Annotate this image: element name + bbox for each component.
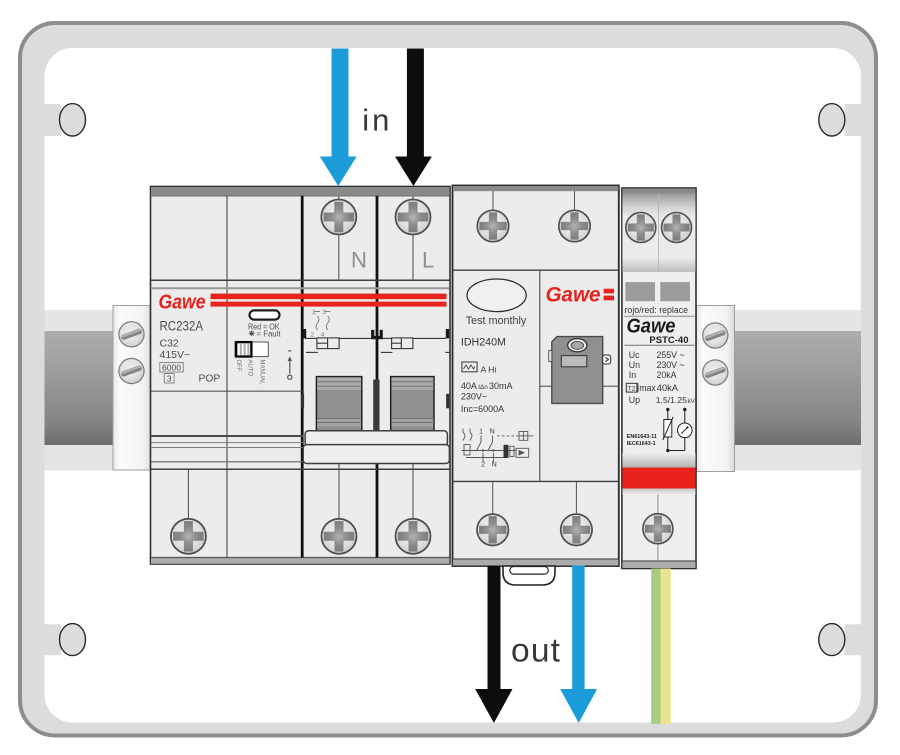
svg-text:out: out [511,632,561,669]
svg-text:Uc: Uc [629,350,640,360]
svg-text:Gawe: Gawe [546,284,601,307]
svg-text:MANUAL: MANUAL [258,360,264,386]
svg-text:Un: Un [629,360,640,370]
svg-text:230V ~: 230V ~ [657,360,685,370]
svg-text:6000: 6000 [162,363,181,373]
svg-text:3: 3 [322,309,326,316]
svg-text:1: 1 [312,309,316,316]
svg-text:max: max [639,383,656,393]
svg-text:IDH240M: IDH240M [461,337,506,349]
svg-text:30mA: 30mA [489,381,513,391]
svg-text:N: N [351,247,367,272]
svg-text:20kA: 20kA [657,370,677,380]
svg-text:3: 3 [167,374,172,384]
svg-text:40kA: 40kA [657,383,679,393]
svg-text:IEC61643-1: IEC61643-1 [627,441,656,447]
svg-text:Inc=6000A: Inc=6000A [461,404,504,414]
svg-text:in: in [362,103,392,138]
svg-text:255V ~: 255V ~ [657,350,685,360]
svg-text:C32: C32 [160,338,179,350]
svg-text:EN61643-11: EN61643-11 [627,434,657,440]
svg-text:OFF: OFF [235,360,241,372]
svg-text:= Fault: = Fault [257,330,282,339]
svg-text:Test monthly: Test monthly [466,315,527,327]
svg-text:RC232A: RC232A [160,319,204,334]
svg-text:2: 2 [311,332,315,339]
svg-text:L: L [422,247,434,272]
svg-text:PSTC-40: PSTC-40 [649,335,688,346]
svg-text:40A: 40A [461,381,477,391]
svg-text:Up: Up [629,395,640,405]
svg-text:rojo/red: replace: rojo/red: replace [625,305,689,315]
svg-text:Gawe: Gawe [159,291,206,314]
svg-text:415V~: 415V~ [160,349,191,361]
svg-text:2: 2 [481,460,485,469]
svg-text:POP: POP [199,373,221,384]
svg-text:In: In [629,370,636,380]
svg-text:AUTO: AUTO [247,360,253,377]
svg-text:kV: kV [688,398,696,405]
svg-text:A Hi: A Hi [481,365,497,375]
svg-text:N: N [490,427,495,436]
svg-text:IΔn: IΔn [478,384,488,391]
svg-text:1.5/1.25: 1.5/1.25 [656,395,687,405]
svg-text:N: N [492,460,497,469]
svg-text:230V~: 230V~ [461,391,487,401]
svg-text:1: 1 [479,427,483,436]
svg-text:T2: T2 [628,386,636,393]
